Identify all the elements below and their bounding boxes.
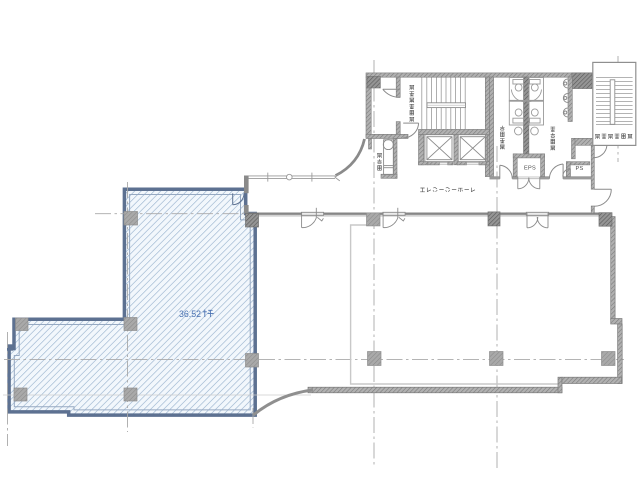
- svg-text:PS: PS: [576, 166, 584, 172]
- svg-text:EPS: EPS: [524, 166, 536, 172]
- svg-text:36.52: 36.52: [179, 309, 201, 319]
